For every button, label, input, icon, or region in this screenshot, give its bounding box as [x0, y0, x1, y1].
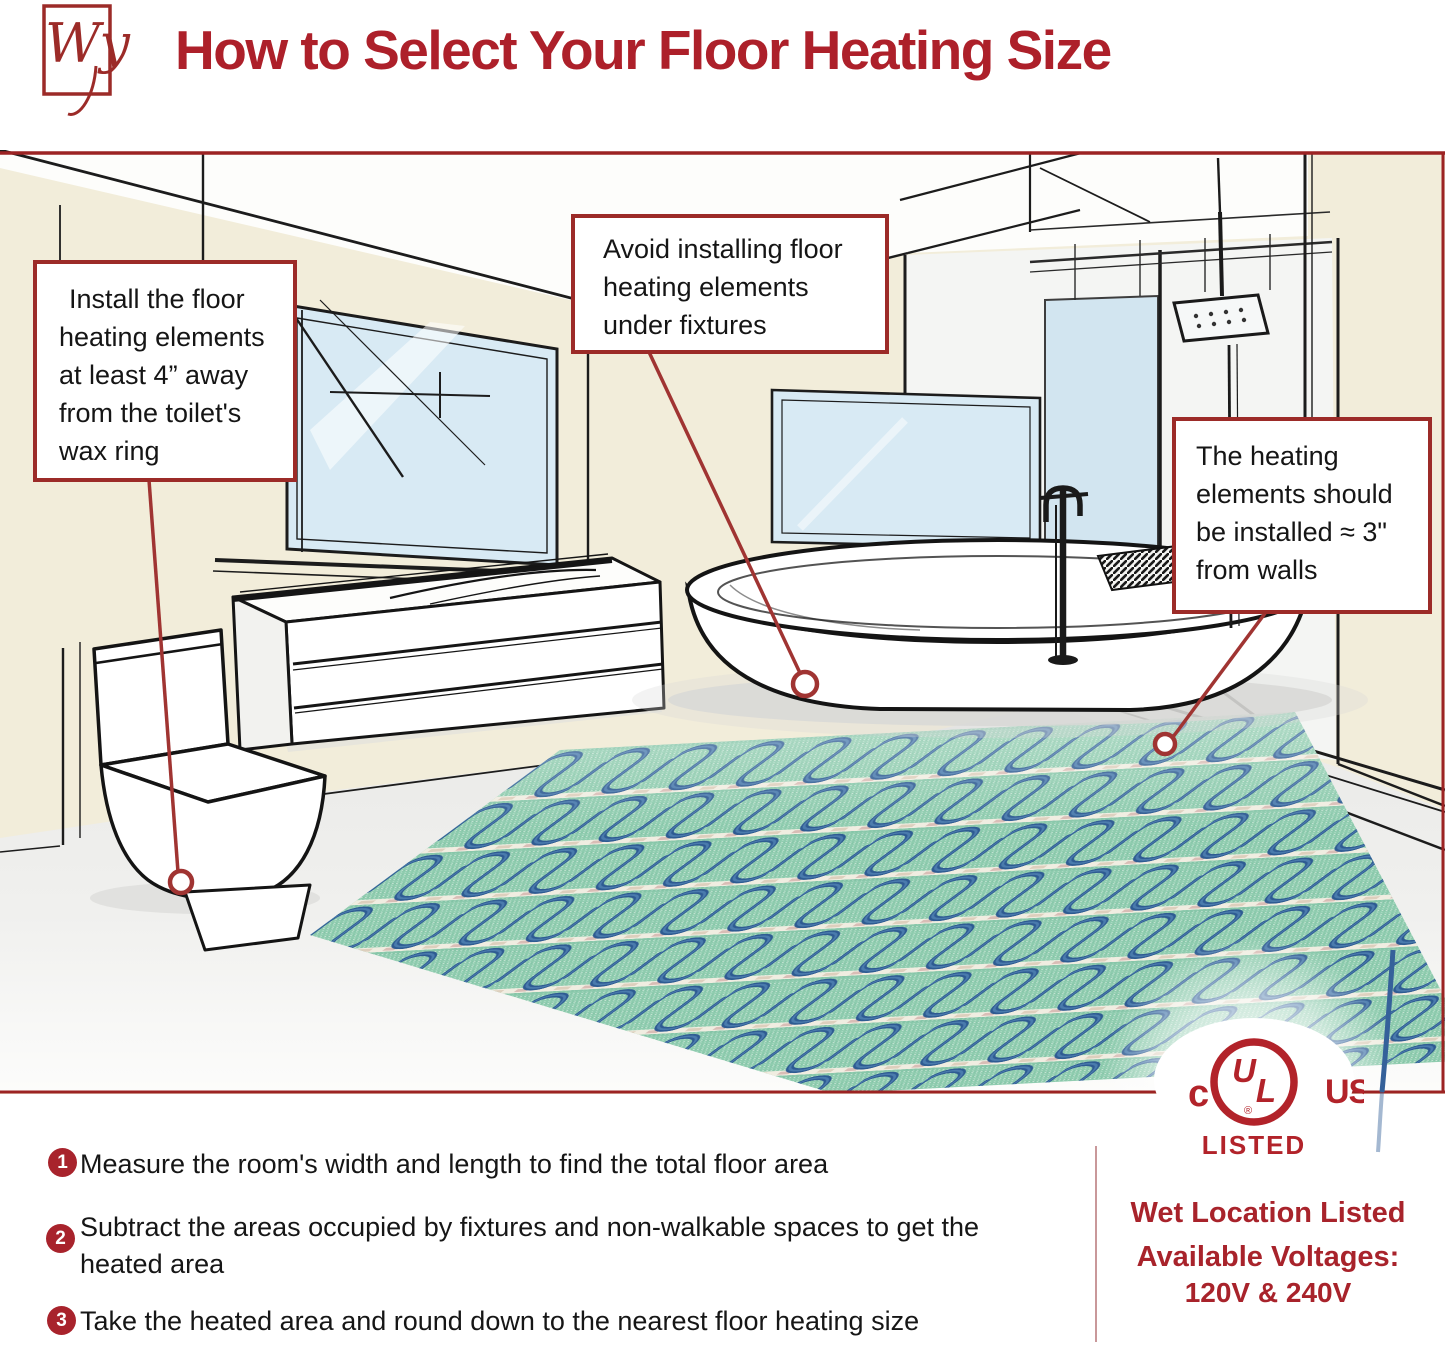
callout-avoid-fixtures: Avoid installing floor heating elements …: [571, 214, 889, 354]
step-1-badge: 1: [48, 1148, 77, 1177]
logo-monogram: Wy: [45, 12, 131, 75]
cul-us-listed-icon: c U L ® US LISTED: [1148, 1014, 1364, 1180]
ul-l-label: L: [1256, 1072, 1276, 1109]
callout-wall-clearance: The heating elements should be installed…: [1172, 417, 1432, 614]
step-3-badge: 3: [47, 1306, 76, 1335]
voltages-value: 120V & 240V: [1106, 1277, 1430, 1309]
ul-listed-label: LISTED: [1202, 1130, 1306, 1160]
wet-location-label: Wet Location Listed: [1106, 1197, 1430, 1230]
callout-toilet-clearance: Install the floor heating elements at le…: [33, 260, 297, 482]
voltages-label: Available Voltages:: [1106, 1241, 1430, 1274]
wall-marker-icon: [1155, 734, 1175, 754]
ul-u-label: U: [1232, 1052, 1257, 1089]
ul-registered-label: ®: [1244, 1105, 1252, 1117]
ul-us-label: US: [1325, 1073, 1364, 1111]
back-window: [772, 390, 1040, 548]
step-3-text: Take the heated area and round down to t…: [80, 1303, 1090, 1340]
footer-divider: [1095, 1146, 1097, 1342]
tub-marker-icon: [793, 672, 817, 696]
infographic-page: { "page": { "logo_text": "Wy", "title": …: [0, 0, 1445, 1348]
ul-c-label: c: [1188, 1073, 1209, 1115]
toilet-marker-icon: [170, 871, 192, 893]
brand-logo: Wy: [30, 0, 160, 132]
step-1-text: Measure the room's width and length to f…: [80, 1146, 1060, 1183]
step-2-text: Subtract the areas occupied by fixtures …: [80, 1209, 1010, 1283]
page-title: How to Select Your Floor Heating Size: [175, 18, 1335, 82]
step-2-badge: 2: [46, 1224, 75, 1253]
